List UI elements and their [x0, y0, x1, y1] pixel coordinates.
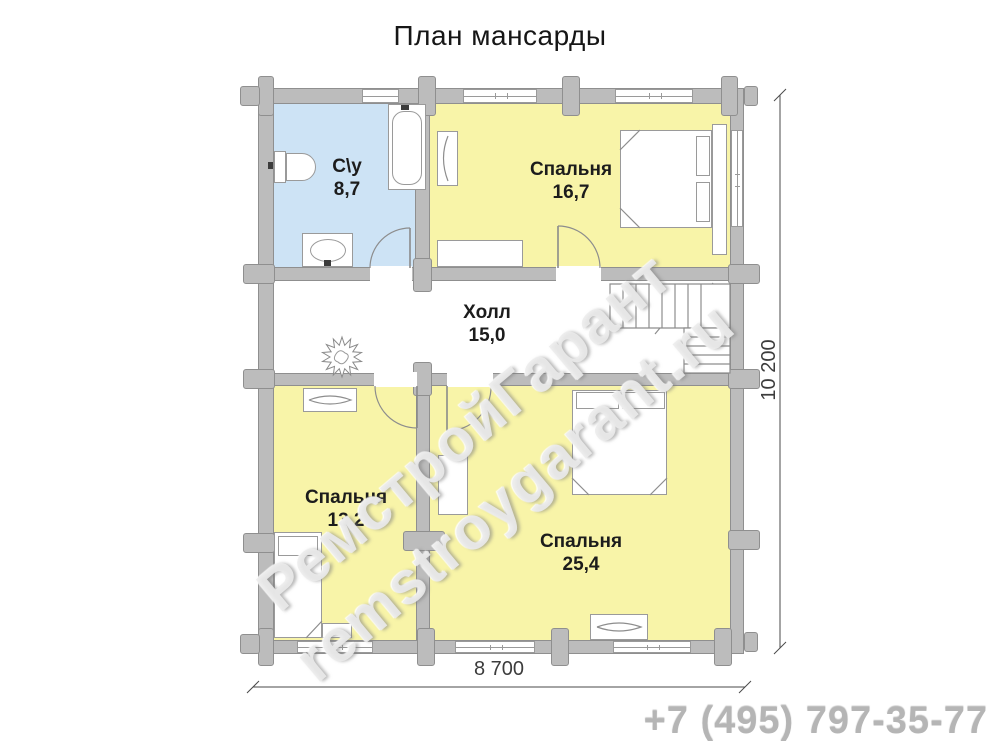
wall-hall-top [274, 267, 730, 281]
dimension-width-label: 8 700 [449, 658, 549, 681]
window-mullion-tick [502, 645, 503, 650]
room-label-bathroom: С\у8,7 [332, 155, 362, 201]
window-mullion-tick [330, 645, 331, 650]
window-mullion-tick [735, 174, 740, 175]
room-label-bedroom-top: Спальня16,7 [530, 158, 612, 204]
bathroom-door-opening [370, 266, 412, 282]
bathtub-inner [392, 111, 422, 185]
sink-bowl [310, 239, 346, 262]
page-title: План мансарды [0, 20, 1000, 52]
window-glass-line [298, 647, 372, 648]
dim-tick-right-bottom [774, 642, 786, 654]
log-end [417, 628, 435, 666]
dim-tick-right-top [774, 89, 786, 101]
window-mullion-tick [342, 645, 343, 650]
floor-plan-canvas: План мансарды С\у8,7Спальня16,7Холл15,0С… [0, 0, 1000, 750]
toilet-tank [274, 151, 286, 183]
bedroom-top-dresser [437, 131, 458, 186]
window-bottom-left [297, 641, 373, 653]
wall-divider-bottom [416, 386, 430, 640]
window-glass-line [616, 96, 692, 97]
room-name: Спальня [530, 159, 612, 180]
bedroom-top-cabinet [437, 240, 523, 267]
room-area: 13,2 [328, 510, 365, 531]
log-end [413, 258, 432, 292]
toilet-valve [268, 162, 273, 169]
dimension-height-label: 10 200 [757, 320, 781, 420]
dim-tick-bottom-right [739, 681, 751, 693]
log-end [714, 628, 732, 666]
window-top-bedroom-1 [463, 89, 537, 103]
log-end [728, 530, 760, 550]
window-right-bedroom [731, 130, 743, 227]
bedroom-top-pillow-2 [696, 182, 710, 222]
log-end [728, 264, 760, 284]
log-end [258, 76, 274, 116]
bathtub-tap [401, 105, 409, 110]
log-end [403, 531, 445, 551]
bedroom-big-door-opening [447, 372, 493, 387]
log-end [744, 86, 758, 106]
room-label-hall: Холл15,0 [463, 301, 511, 347]
wall-hall-bottom [274, 373, 730, 386]
dim-tick-bottom-left [247, 681, 259, 693]
room-name: Спальня [540, 531, 622, 552]
room-label-bedroom-big: Спальня25,4 [540, 530, 622, 576]
room-name: С\у [332, 156, 362, 177]
toilet-bowl [286, 153, 316, 181]
window-glass-line [363, 96, 398, 97]
bedroom-top-door-opening [556, 266, 601, 282]
window-bottom-big-1 [455, 641, 535, 653]
bedroom-big-dresser [590, 614, 648, 640]
log-end [240, 634, 260, 654]
window-mullion-tick [735, 186, 740, 187]
log-end [243, 264, 275, 284]
bedroom-left-door-opening [374, 372, 417, 387]
room-name: Спальня [305, 487, 387, 508]
room-name: Холл [463, 302, 511, 323]
window-glass-line [737, 131, 738, 226]
window-glass-line [464, 96, 536, 97]
window-top-bathroom [362, 89, 399, 103]
window-mullion-tick [495, 93, 496, 99]
room-area: 16,7 [553, 182, 590, 203]
window-mullion-tick [647, 645, 648, 650]
room-area: 8,7 [334, 179, 360, 200]
window-mullion-tick [659, 645, 660, 650]
sink-tap [324, 260, 331, 266]
log-end [243, 533, 275, 553]
log-end [551, 628, 569, 666]
room-area: 25,4 [563, 554, 600, 575]
log-end [721, 76, 738, 116]
log-end [744, 632, 758, 652]
window-mullion-tick [649, 93, 650, 99]
bedroom-big-pillow-2 [622, 392, 665, 409]
bedroom-top-headboard [712, 124, 727, 255]
window-bottom-big-2 [613, 641, 691, 653]
bedroom-left-pillow [278, 536, 318, 556]
log-end [243, 369, 275, 389]
bedroom-big-wardrobe [438, 455, 468, 515]
log-end [258, 628, 274, 666]
window-mullion-tick [661, 93, 662, 99]
room-label-bedroom-left: Спальня13,2 [305, 486, 387, 532]
bedroom-left-dresser [303, 388, 357, 412]
room-area: 15,0 [469, 325, 506, 346]
log-end [562, 76, 580, 116]
phone-number: +7 (495) 797-35-77 [644, 700, 988, 743]
bedroom-big-pillow-1 [576, 392, 619, 409]
window-glass-line [456, 647, 534, 648]
bedroom-left-cabinet [322, 623, 352, 638]
log-end [240, 86, 260, 106]
window-top-bedroom-2 [615, 89, 693, 103]
bedroom-top-pillow-1 [696, 136, 710, 176]
window-mullion-tick [490, 645, 491, 650]
window-glass-line [614, 647, 690, 648]
window-mullion-tick [507, 93, 508, 99]
log-end [728, 369, 760, 389]
